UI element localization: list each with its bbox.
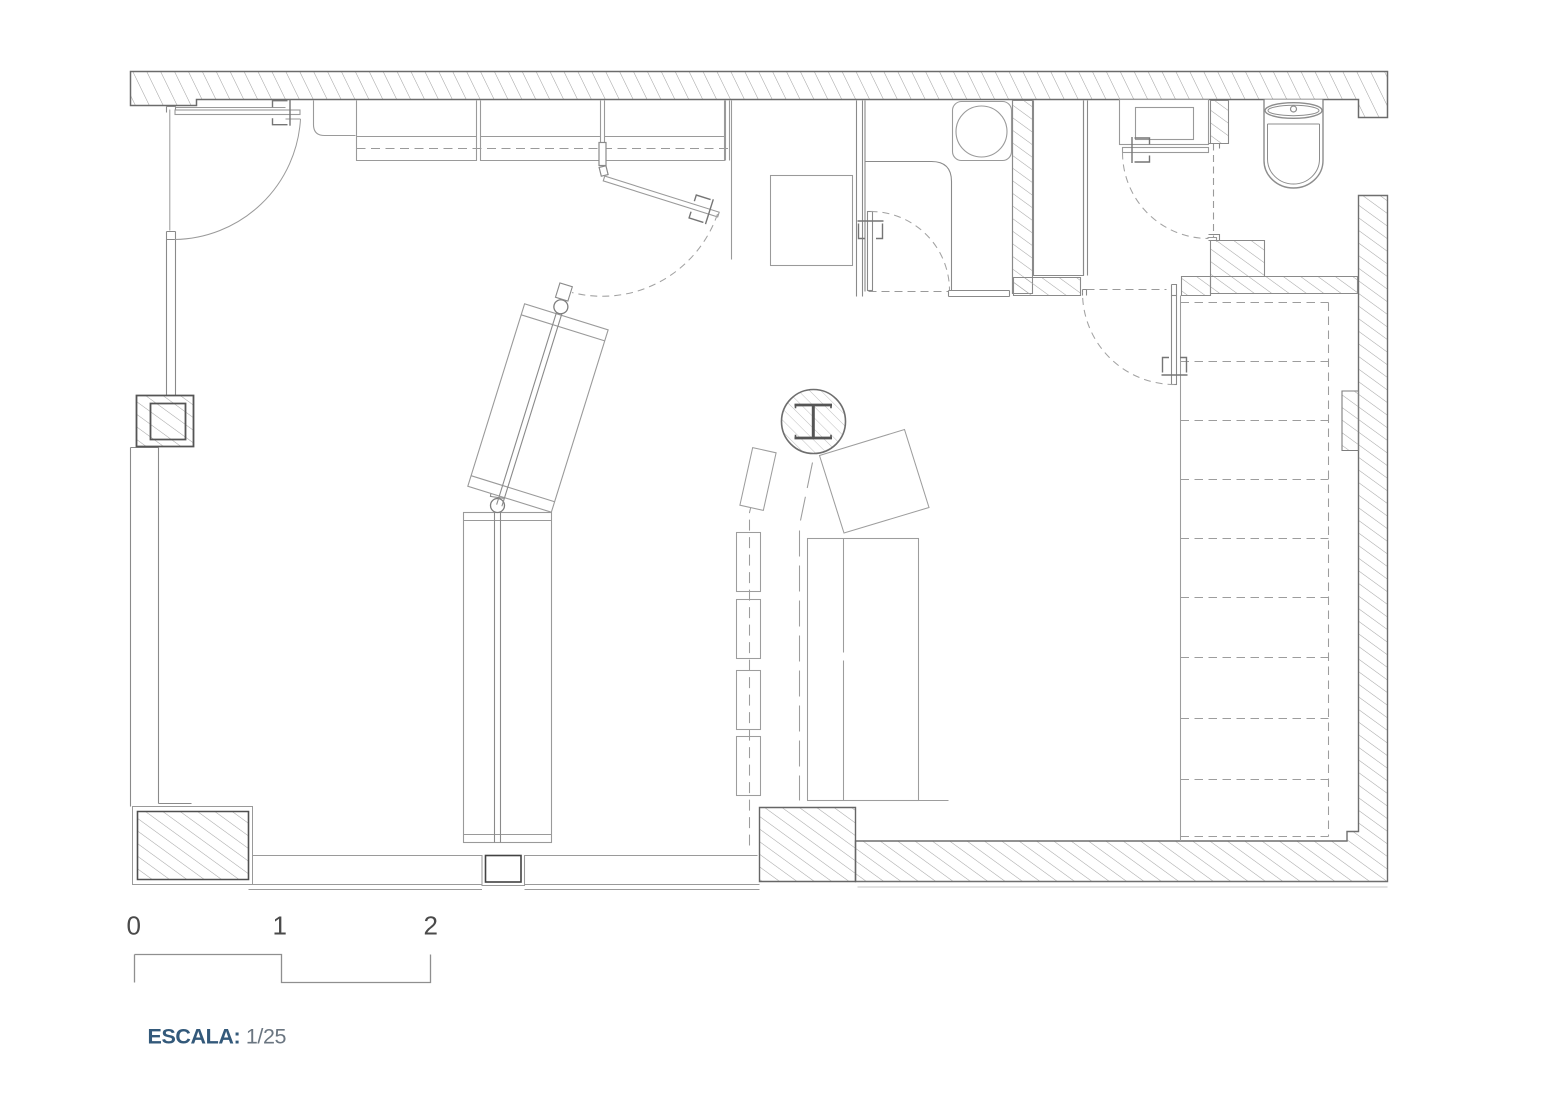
svg-text:0: 0 [127,911,141,941]
svg-text:ESCALA: 1/25: ESCALA: 1/25 [148,1025,287,1049]
svg-text:2: 2 [424,911,438,941]
svg-text:1: 1 [273,911,287,941]
